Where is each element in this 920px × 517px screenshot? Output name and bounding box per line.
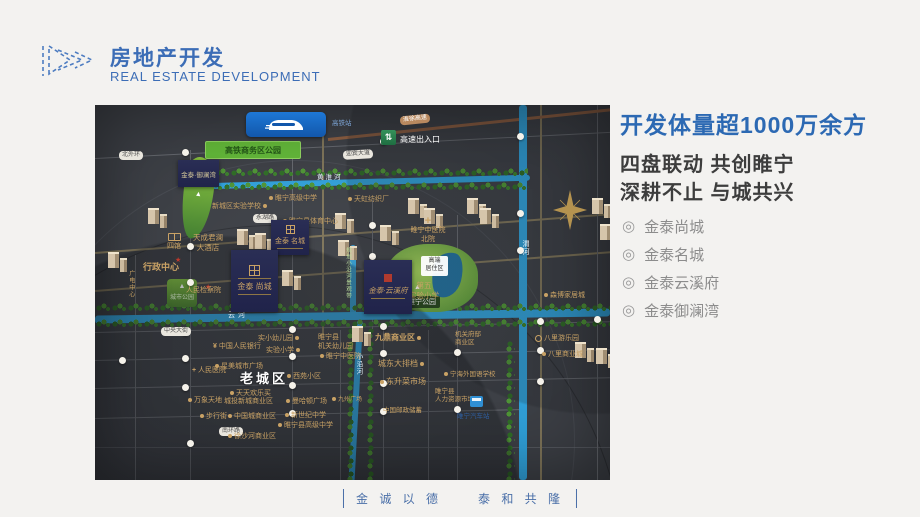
train-station-label: 高铁站 (332, 117, 352, 127)
map-landmark: 星美城市广场 (213, 362, 263, 371)
cross-icon: + (400, 217, 456, 226)
road-junction-dot (537, 378, 544, 385)
city-master-plan-map: 高铁商务区公园 ▲ ▲ 城市公园 九曲湖 ▲ 睢宁公园 (95, 105, 610, 480)
map-landmark: 广电中心 (126, 270, 134, 298)
map-landmark-amusement-park: 八里游乐园 (535, 334, 579, 343)
road-junction-dot (289, 382, 296, 389)
road (135, 255, 136, 480)
project-box-shangcheng: 金泰 尚城 (231, 250, 278, 312)
bullseye-bullet-icon: ◎ (622, 217, 635, 235)
building-cluster (108, 252, 119, 268)
map-landmark: 步行街 (198, 412, 227, 421)
road-junction-dot (182, 355, 189, 362)
list-item: ◎金泰云溪府 (622, 268, 719, 296)
project-name: 金泰御澜湾 (644, 300, 719, 321)
road-junction-dot (380, 350, 387, 357)
gold-divider (371, 298, 405, 299)
high-end-residential-label: 高端 居住区 (421, 256, 448, 276)
road-junction-dot (369, 222, 376, 229)
list-item: ◎金泰名城 (622, 240, 719, 268)
project-box-label: 金泰·云溪府 (368, 285, 407, 296)
river-label: 黄淮河 (317, 171, 343, 181)
road-label: 中央大街 (161, 327, 191, 336)
map-landmark: 天成君澜 大酒店 (177, 233, 239, 253)
dashed-arrows-logo-icon (38, 38, 96, 84)
highway-exit-icon: ⇅ (381, 130, 396, 145)
road-junction-dot (517, 133, 524, 140)
building-cluster (467, 198, 478, 214)
motto-left: 金 诚 以 德 (356, 490, 442, 507)
slogan-line-2: 深耕不止 与城共兴 (620, 176, 795, 205)
river-label: 渭河 (520, 240, 530, 256)
map-landmark: 曼哈顿广场 (284, 397, 327, 406)
book-icon (168, 233, 181, 241)
map-landmark: 万象天地 (186, 396, 222, 405)
map-landmark: 天虹纺织厂 (346, 195, 389, 204)
gold-divider (238, 278, 271, 279)
map-landmark: 九鼎商业区 (375, 333, 423, 343)
ferris-wheel-icon (535, 335, 542, 342)
road-junction-dot (380, 323, 387, 330)
map-landmark: 睢宁县 机关幼儿园 (318, 333, 360, 351)
road-junction-dot (182, 384, 189, 391)
map-landmark: 睢宁高级中学 (267, 194, 317, 203)
project-box-label: 金泰·御澜湾 (181, 169, 216, 179)
map-landmark: 森博家居城 (542, 291, 585, 300)
bus-station-label: 睢宁汽车站 (457, 410, 490, 420)
road-label: 迎宾大道 (343, 149, 373, 160)
map-landmark: 睢宁县高级中学 (276, 421, 333, 430)
compass-icon (553, 188, 587, 232)
building-cluster (380, 225, 391, 241)
road (597, 105, 598, 480)
project-box-yulanwan: 金泰·御澜湾 (178, 160, 219, 187)
road-junction-dot (119, 357, 126, 364)
map-landmark: 徐沙河商业区 (226, 432, 276, 441)
list-item: ◎金泰尚城 (622, 212, 719, 240)
project-box-label: 金泰 名城 (275, 236, 305, 246)
real-estate-slide: 房地产开发 REAL ESTATE DEVELOPMENT 开发体量超1000万… (0, 0, 920, 517)
road-junction-dot (517, 210, 524, 217)
map-landmark-hospital: +睢宁中医院 北院 (400, 217, 456, 244)
bullseye-bullet-icon: ◎ (622, 301, 635, 319)
park-label: 高铁商务区公园 (225, 145, 281, 156)
project-box-yunxifu: 金泰·云溪府 (364, 260, 412, 314)
river-label: 规划小沿河景观带 (344, 247, 352, 299)
map-landmark: 西苑小区 (285, 372, 321, 381)
road-junction-dot (187, 440, 194, 447)
tree-row (198, 168, 528, 177)
road-label: 北外环 (119, 151, 143, 160)
bus-station-icon (470, 396, 483, 407)
building-cluster (480, 208, 491, 224)
building-cluster (596, 348, 607, 364)
road-junction-dot (289, 326, 296, 333)
gold-divider (238, 294, 271, 295)
train-icon (265, 116, 307, 134)
map-landmark: 八里商业城 (540, 350, 583, 359)
map-landmark: 城东大排档 (378, 359, 426, 369)
map-landmark: 中国邮政储蓄 (383, 407, 422, 415)
map-landmark: 新世纪中学 (283, 411, 326, 420)
bullseye-bullet-icon: ◎ (622, 273, 635, 291)
map-landmark: 新城区实验学校 (212, 202, 269, 211)
motto-right: 泰 和 共 隆 (478, 490, 564, 507)
tree-icon: ▲ (183, 189, 214, 199)
high-speed-rail-badge (246, 112, 326, 137)
building-cluster (282, 270, 293, 286)
building-cluster (148, 208, 159, 224)
road-junction-dot (454, 349, 461, 356)
slogan-line-1: 四盘联动 共创睢宁 (620, 148, 795, 177)
project-logo-icon (249, 265, 260, 276)
project-name: 金泰云溪府 (644, 272, 719, 293)
map-landmark: 九州广场 (330, 397, 362, 405)
map-landmark: 实小幼儿园 (258, 334, 301, 343)
gold-divider (277, 248, 304, 249)
expressway-line (328, 107, 610, 141)
park-hsr-business-district: 高铁商务区公园 (205, 141, 301, 159)
tree-column (506, 340, 515, 480)
highway-exit-label: 高速出入口 (400, 134, 440, 145)
expressway-label: 淮徐高速 (400, 113, 431, 125)
map-landmark-bank: ¥ 中国人民银行 (213, 342, 261, 351)
bullseye-bullet-icon: ◎ (622, 245, 635, 263)
road-junction-dot (369, 253, 376, 260)
map-landmark: 人民检察院 (186, 286, 221, 295)
tree-row (207, 182, 529, 190)
river-weihe (519, 105, 527, 480)
page-title: 房地产开发 (110, 42, 225, 72)
map-landmark: 宁海外国语学校 (442, 371, 496, 379)
building-cluster (600, 224, 610, 240)
road (428, 330, 429, 480)
road-junction-dot (187, 279, 194, 286)
red-seal-icon (384, 274, 392, 282)
list-item: ◎金泰御澜湾 (622, 296, 719, 324)
project-logo-icon (286, 225, 295, 234)
building-cluster (408, 198, 419, 214)
project-name: 金泰名城 (644, 244, 704, 265)
project-name: 金泰尚城 (644, 216, 704, 237)
tree-column (367, 327, 375, 480)
road-junction-dot (182, 149, 189, 156)
footer-motto: 金 诚 以 德 泰 和 共 隆 (343, 489, 577, 508)
map-landmark: 实验小学 (266, 346, 302, 355)
project-box-label: 金泰 尚城 (237, 281, 271, 292)
map-landmark-museums: 四馆 (163, 233, 185, 251)
map-landmark: 东升菜市场 (378, 377, 426, 387)
map-landmark-admin-center: 行政中心 (143, 262, 179, 274)
building-cluster (592, 198, 603, 214)
road-junction-dot (537, 318, 544, 325)
map-landmark: 城投新城商业区 (224, 397, 273, 406)
page-subtitle: REAL ESTATE DEVELOPMENT (110, 69, 321, 84)
building-cluster (255, 233, 266, 249)
map-landmark: 中国城商业区 (226, 412, 276, 421)
map-landmark: 机关府邸 商业区 (455, 331, 499, 348)
project-list: ◎金泰尚城 ◎金泰名城 ◎金泰云溪府 ◎金泰御澜湾 (622, 212, 719, 324)
map-landmark: 睢宁中医院 (318, 352, 361, 361)
headline: 开发体量超1000万余方 (620, 106, 867, 140)
star-icon: ★ (175, 256, 181, 264)
road-junction-dot (594, 316, 601, 323)
